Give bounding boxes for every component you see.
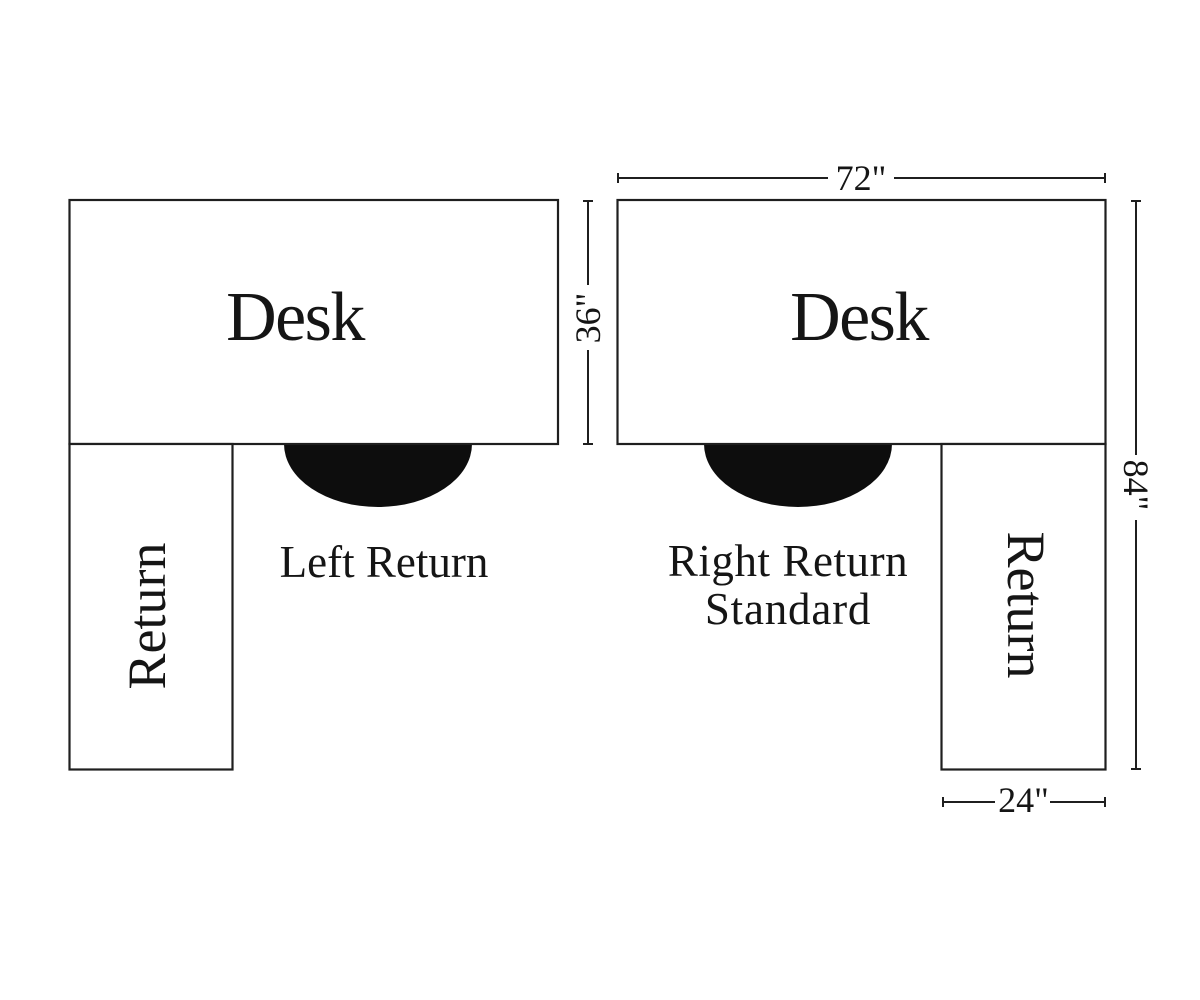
svg-text:Right Return: Right Return — [668, 536, 908, 586]
svg-text:Standard: Standard — [705, 584, 871, 634]
svg-text:36": 36" — [568, 293, 608, 344]
svg-text:Desk: Desk — [226, 279, 365, 356]
svg-text:Left Return: Left Return — [280, 537, 489, 587]
svg-text:84": 84" — [1116, 460, 1156, 511]
svg-text:Desk: Desk — [790, 279, 929, 356]
svg-text:24": 24" — [998, 780, 1049, 820]
svg-text:Return: Return — [117, 543, 177, 690]
svg-text:72": 72" — [836, 158, 887, 198]
svg-text:Return: Return — [996, 532, 1056, 679]
